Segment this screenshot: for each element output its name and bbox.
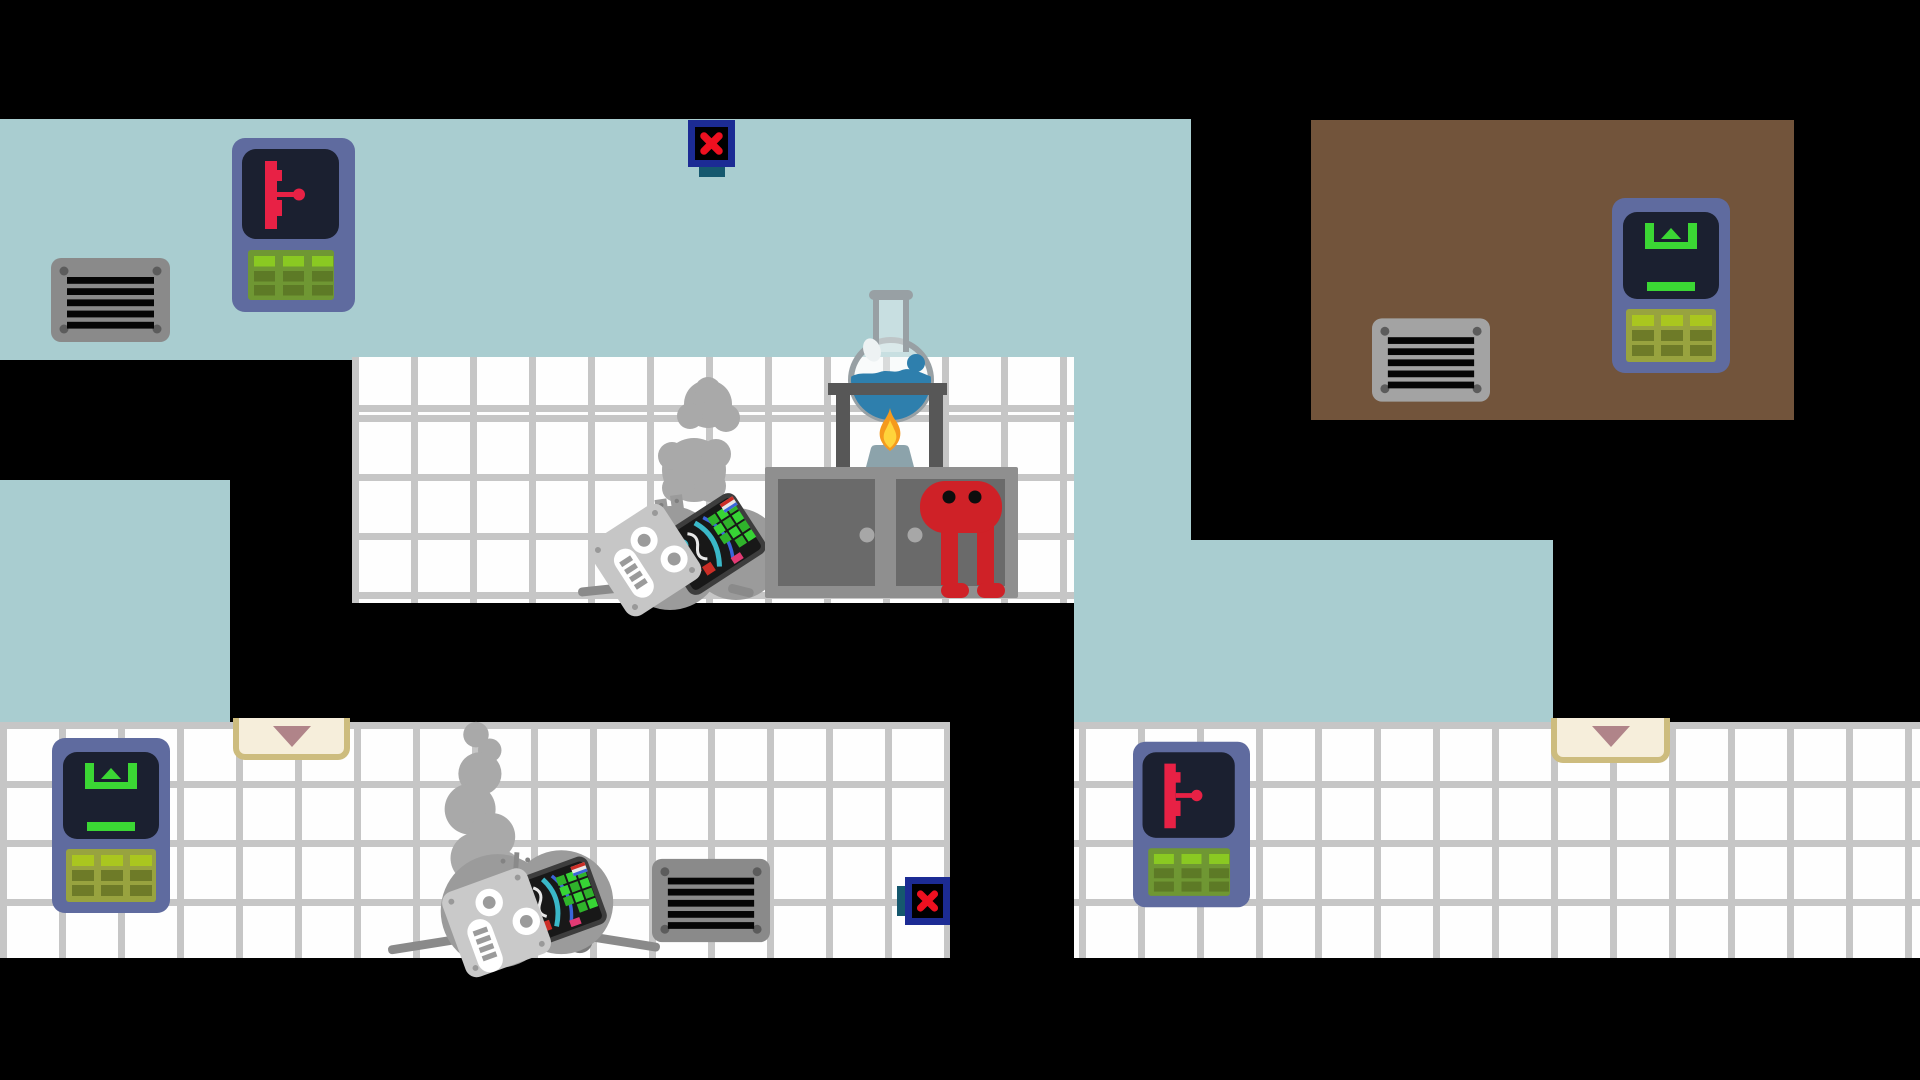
keypad-button[interactable] — [1661, 345, 1683, 356]
keypad-button[interactable] — [1182, 882, 1202, 892]
vent-slat — [1388, 382, 1474, 389]
vent-slat — [67, 311, 154, 318]
door-indicator-right[interactable] — [1551, 718, 1670, 763]
keypad-button[interactable] — [254, 285, 275, 296]
lift-panel-bottom-left[interactable] — [52, 738, 170, 913]
keypad-button[interactable] — [1690, 315, 1712, 326]
keypad-button[interactable] — [1690, 330, 1712, 341]
smoke-plume — [658, 377, 740, 502]
keypad-button[interactable] — [101, 870, 123, 881]
game-scene[interactable] — [0, 0, 1920, 1080]
vent-slat — [1388, 337, 1474, 344]
keypad-button[interactable] — [1154, 868, 1174, 878]
vent-slat — [668, 922, 754, 929]
keypad-button[interactable] — [312, 271, 333, 282]
x-sign-screen — [695, 127, 728, 160]
keypad-button[interactable] — [312, 256, 333, 267]
vent-top-left — [51, 258, 170, 342]
x-sign-mount-tab — [699, 167, 725, 177]
wall-left-shaft — [0, 480, 230, 722]
lever-panel-bottom-right[interactable] — [1133, 737, 1250, 912]
vent-slat — [668, 900, 754, 907]
flask-neck — [875, 296, 907, 352]
keypad-button[interactable] — [1690, 345, 1712, 356]
x-sign-top[interactable] — [688, 120, 735, 167]
keypad-button[interactable] — [72, 870, 94, 881]
wall-right-hall — [1191, 540, 1553, 722]
keypad-button[interactable] — [130, 885, 152, 896]
robot-standing-smoking — [375, 715, 675, 960]
red-x-icon — [695, 127, 728, 160]
player-head — [920, 481, 1002, 533]
cabinet-handle — [860, 528, 875, 543]
keypad-button[interactable] — [283, 271, 304, 282]
keypad-button[interactable] — [254, 271, 275, 282]
player-character-red[interactable] — [915, 475, 1010, 600]
keypad-button[interactable] — [1154, 882, 1174, 892]
down-arrow-icon — [273, 726, 311, 747]
vent-slat — [668, 889, 754, 896]
vent-slat — [1388, 359, 1474, 366]
vent-slat — [67, 299, 154, 306]
keypad-button[interactable] — [1209, 868, 1229, 878]
vent-slat — [668, 911, 754, 918]
wall-top-hall — [0, 119, 1191, 360]
wall-mid-shaft — [1074, 360, 1191, 722]
keypad-button[interactable] — [1661, 330, 1683, 341]
keypad-button[interactable] — [283, 285, 304, 296]
keypad-button[interactable] — [72, 885, 94, 896]
player-foot — [941, 583, 969, 598]
keypad-button[interactable] — [254, 256, 275, 267]
keypad-button[interactable] — [312, 285, 333, 296]
vent-slat — [1388, 371, 1474, 378]
keypad-button[interactable] — [283, 256, 304, 267]
down-arrow-icon — [1592, 726, 1630, 747]
player-eye — [943, 491, 956, 504]
player-eye — [969, 491, 982, 504]
keypad-button[interactable] — [130, 870, 152, 881]
vent-slat — [1388, 348, 1474, 355]
keypad-button[interactable] — [1632, 330, 1654, 341]
keypad-button[interactable] — [101, 855, 123, 866]
lever-panel-top-left[interactable] — [232, 138, 355, 312]
flask-burner-rig — [820, 290, 950, 470]
vent-brown-room — [1372, 318, 1490, 402]
vent-slat — [67, 277, 154, 284]
keypad-button[interactable] — [1154, 854, 1174, 864]
keypad-button[interactable] — [1632, 315, 1654, 326]
keypad-button[interactable] — [1182, 868, 1202, 878]
keypad-button[interactable] — [1182, 854, 1202, 864]
vent-slat — [668, 878, 754, 885]
keypad-button[interactable] — [130, 855, 152, 866]
x-sign-bottom[interactable] — [905, 877, 950, 925]
red-x-icon — [912, 884, 943, 918]
vent-slat — [67, 288, 154, 295]
x-sign-frame — [905, 877, 950, 925]
keypad-button[interactable] — [1209, 882, 1229, 892]
keypad-button[interactable] — [1209, 854, 1229, 864]
door-indicator-left[interactable] — [233, 718, 350, 760]
vent-bottom-left — [652, 858, 770, 943]
x-sign-mount-tab — [897, 886, 905, 916]
player-foot — [977, 583, 1005, 598]
lift-panel-brown-room[interactable] — [1612, 198, 1730, 373]
keypad-button[interactable] — [1661, 315, 1683, 326]
x-sign-screen — [912, 884, 943, 918]
vent-slat — [67, 322, 154, 329]
x-sign-frame — [688, 120, 735, 167]
keypad-button[interactable] — [101, 885, 123, 896]
keypad-button[interactable] — [1632, 345, 1654, 356]
keypad-button[interactable] — [72, 855, 94, 866]
